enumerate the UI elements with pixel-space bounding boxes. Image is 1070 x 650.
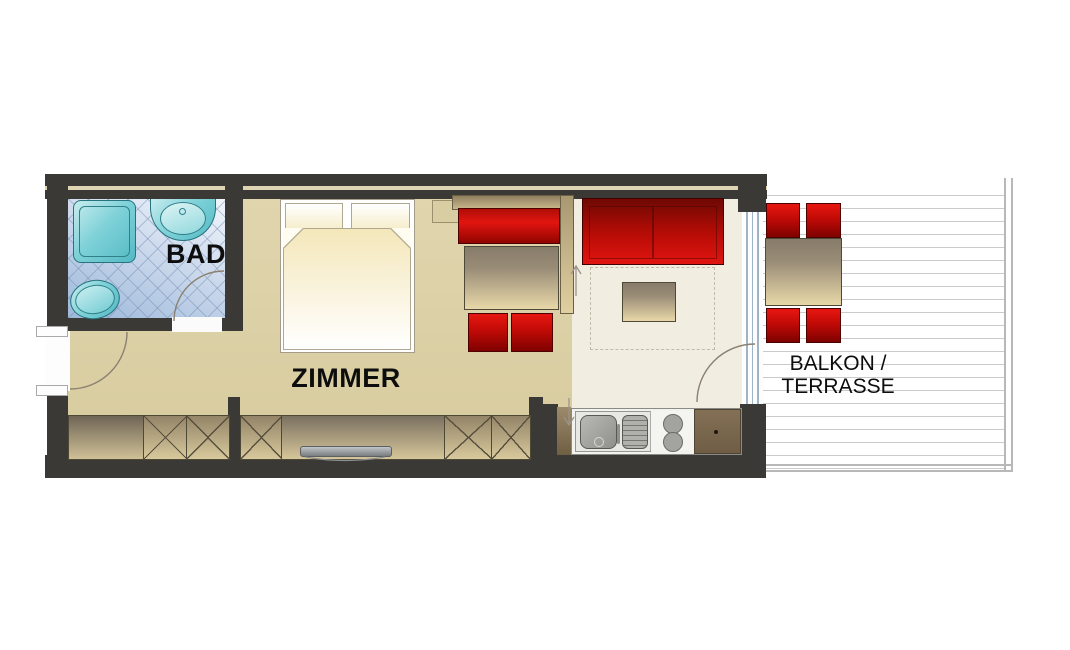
main-room-label: ZIMMER xyxy=(277,363,415,394)
balcony-chair xyxy=(806,308,841,343)
balcony-railing-outer xyxy=(1004,178,1006,472)
coffee-table xyxy=(622,282,676,322)
balcony-label: BALKON / TERRASSE xyxy=(763,352,913,398)
entry-door-frame-bottom xyxy=(36,385,68,396)
wardrobe-box xyxy=(143,415,188,460)
washbasin-tap xyxy=(179,208,186,215)
balcony-label-line1: BALKON / xyxy=(790,352,887,375)
balcony-table xyxy=(765,238,842,306)
tv xyxy=(300,446,392,457)
sink-drain xyxy=(594,437,604,447)
kitchen-cabinet xyxy=(694,409,741,454)
balcony-wall-stub-top xyxy=(738,174,766,212)
dining-chair xyxy=(468,313,508,352)
balcony-chair xyxy=(766,308,800,343)
closet-wall-stub-b xyxy=(529,397,543,458)
stove xyxy=(650,411,695,450)
duvet-fold xyxy=(389,228,411,250)
corner-bench xyxy=(458,208,560,244)
toilet-bowl xyxy=(73,282,117,318)
sofa-cushion xyxy=(653,206,717,259)
glass-pane-line xyxy=(752,212,754,404)
stove-burner xyxy=(663,414,683,434)
kitchen-tap xyxy=(617,424,620,444)
dining-chair xyxy=(511,313,553,352)
kitchen-sink-basin xyxy=(580,415,617,449)
balcony-chair xyxy=(806,203,841,238)
wardrobe-box xyxy=(240,415,283,460)
duvet-fold xyxy=(283,228,305,250)
wardrobe-box xyxy=(186,415,230,460)
balcony-railing-inner xyxy=(1011,178,1013,472)
glass-pane-line xyxy=(746,212,748,404)
balcony-label-line2: TERRASSE xyxy=(781,375,894,398)
stove-burner xyxy=(663,432,683,452)
sofa-cushion xyxy=(589,206,653,259)
balcony-wall-stub-bottom xyxy=(740,404,766,470)
shower-tray xyxy=(79,206,130,257)
kitchen-side-panel xyxy=(557,407,571,455)
bench-side-panel xyxy=(560,195,574,314)
entry-door-opening xyxy=(45,331,70,391)
balcony-chair xyxy=(766,203,800,238)
drainboard xyxy=(622,415,648,449)
sofa xyxy=(582,198,724,265)
balcony-glass-door xyxy=(743,212,762,404)
double-bed xyxy=(280,199,415,353)
balcony-edge-line-2 xyxy=(763,470,1012,472)
wardrobe-box xyxy=(491,415,531,460)
dining-table xyxy=(464,246,559,310)
bathroom-wall-bottom-right xyxy=(222,318,243,331)
sideboard xyxy=(68,415,145,460)
shower xyxy=(73,200,136,263)
glass-pane-line xyxy=(757,212,759,404)
bathroom-door-opening xyxy=(172,317,222,332)
kitchen-wall-stub xyxy=(543,404,558,478)
washbasin-bowl xyxy=(160,202,206,235)
cabinet-knob xyxy=(714,430,718,434)
balcony-edge-line-1 xyxy=(763,464,1012,466)
wardrobe-box xyxy=(444,415,493,460)
wall-top xyxy=(45,174,767,199)
kitchen-sink-unit xyxy=(575,411,651,452)
floor-plan: BAD ZIMMER xyxy=(0,0,1070,650)
duvet xyxy=(283,228,411,350)
bathroom-label: BAD xyxy=(156,239,236,270)
entry-door-frame-top xyxy=(36,326,68,337)
